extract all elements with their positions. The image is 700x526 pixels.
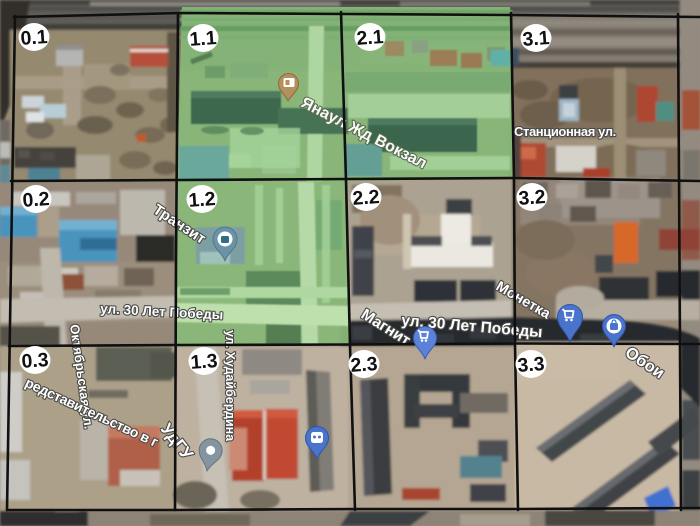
svg-text:ул. Худайбердина: ул. Худайбердина bbox=[223, 330, 237, 442]
svg-text:0.1: 0.1 bbox=[20, 26, 49, 50]
svg-text:1.3: 1.3 bbox=[190, 350, 219, 374]
svg-text:0.2: 0.2 bbox=[22, 188, 51, 212]
svg-text:3.3: 3.3 bbox=[517, 353, 546, 377]
svg-text:3.2: 3.2 bbox=[518, 186, 547, 210]
svg-text:0.3: 0.3 bbox=[21, 349, 50, 373]
svg-text:2.1: 2.1 bbox=[356, 26, 385, 50]
svg-text:2.2: 2.2 bbox=[352, 186, 381, 210]
svg-text:2.3: 2.3 bbox=[350, 353, 379, 377]
svg-text:Станционная ул.: Станционная ул. bbox=[514, 124, 616, 139]
svg-text:1.1: 1.1 bbox=[189, 27, 218, 51]
svg-text:1.2: 1.2 bbox=[188, 188, 217, 212]
svg-text:3.1: 3.1 bbox=[522, 27, 551, 51]
